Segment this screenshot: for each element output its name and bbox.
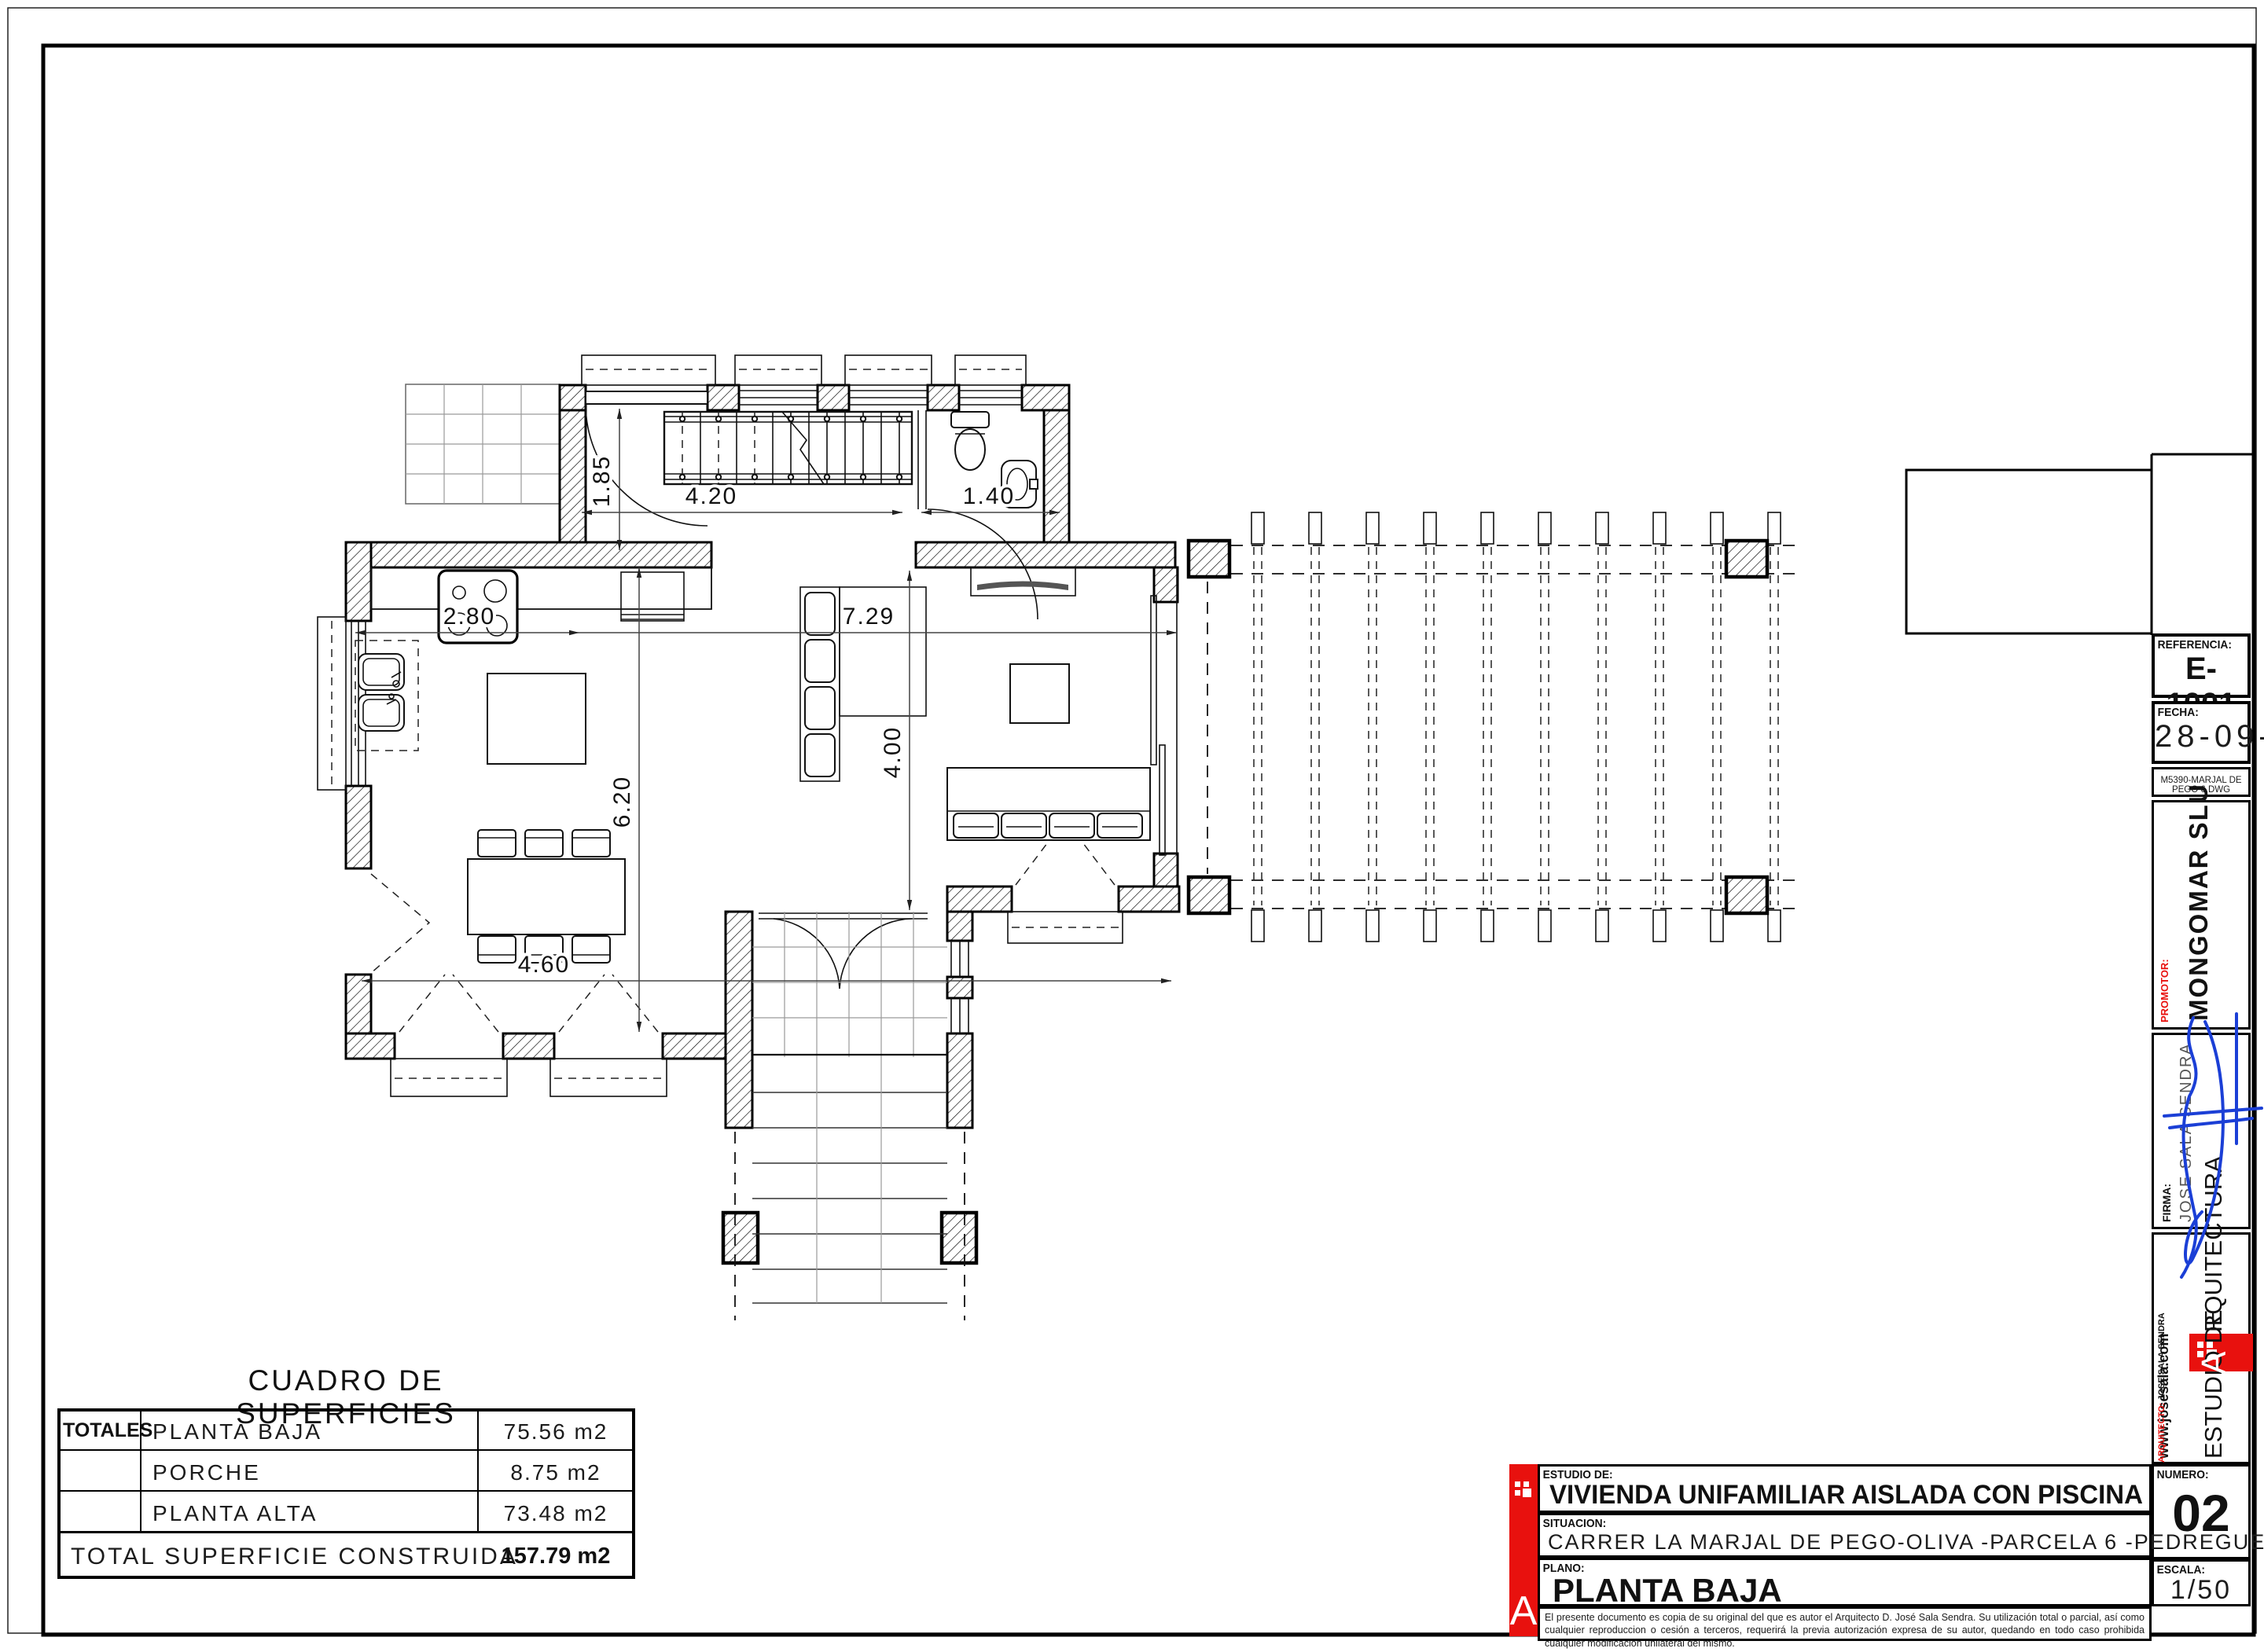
table-total-label: TOTAL SUPERFICIE CONSTRUIDA <box>71 1544 518 1570</box>
kitchen-counter <box>371 567 711 609</box>
red-bar-letter: A <box>1509 1588 1538 1635</box>
dim-185: 1.85 <box>589 455 615 507</box>
studio-text-bottom: ESTUDIO DE <box>2200 1361 2228 1459</box>
porch-pillar <box>942 1213 976 1263</box>
disclaimer-text: El presente documento es copia de su ori… <box>1540 1609 2149 1652</box>
dim-620: 6.20 <box>609 776 635 828</box>
promotor-box: PROMOTOR: MONGOMAR SLU <box>2152 800 2251 1030</box>
kitchen-fixtures <box>355 567 711 764</box>
table-row-label: PLANTA ALTA <box>153 1501 318 1526</box>
chair <box>478 936 516 963</box>
escala-value: 1/50 <box>2154 1575 2248 1606</box>
numero-label: NUMERO: <box>2154 1467 2240 1481</box>
toilet-bowl <box>955 429 985 470</box>
plano-value: PLANTA BAJA <box>1553 1572 2149 1610</box>
chair <box>478 830 516 857</box>
sliding-glass-door <box>1151 567 1177 855</box>
porch <box>735 912 965 1320</box>
drawing-sheet: { "plan": { "dims": { "d185": "1.85", "d… <box>0 0 2264 1642</box>
plano-label: PLANO: <box>1540 1560 2100 1575</box>
coffee-table <box>1010 664 1069 723</box>
pergola <box>1189 512 1796 942</box>
kitchen-appliance <box>621 572 684 621</box>
kitchen-island <box>487 674 586 764</box>
pergola-beams <box>1251 512 1781 942</box>
dim-460: 4.60 <box>518 952 570 978</box>
dim-729: 7.29 <box>843 604 895 630</box>
porch-double-door <box>759 913 928 989</box>
sink-bowl <box>358 695 404 731</box>
sink-bowl <box>358 654 404 690</box>
situacion-box: SITUACION: CARRER LA MARJAL DE PEGO-OLIV… <box>1538 1513 2152 1558</box>
promotor-value: MONGOMAR SLU <box>2184 802 2214 1021</box>
porch-pillar <box>723 1213 758 1263</box>
pergola-pillar <box>1189 877 1229 913</box>
pergola-pillar <box>1726 877 1767 913</box>
signature <box>2150 1006 2264 1289</box>
chair <box>572 936 610 963</box>
table-row-value: 73.48 m2 <box>481 1501 630 1526</box>
key-plan-box <box>1906 470 2152 633</box>
top-wall-windows <box>739 391 1022 405</box>
tv <box>977 582 1068 591</box>
table-row-value: 8.75 m2 <box>481 1460 630 1485</box>
dim-400: 4.00 <box>880 726 906 778</box>
situacion-label: SITUACION: <box>1540 1515 2100 1530</box>
pergola-pillar <box>1726 541 1767 577</box>
dining-table <box>468 859 625 934</box>
table-total-value: 157.79 m2 <box>481 1544 630 1569</box>
dim-280: 2.80 <box>443 604 495 630</box>
dim-420: 4.20 <box>685 483 737 509</box>
toilet-tank <box>951 412 989 428</box>
table-row-value: 75.56 m2 <box>481 1419 630 1445</box>
stairs <box>664 412 912 484</box>
project-title: VIVIENDA UNIFAMILIAR AISLADA CON PISCINA <box>1549 1480 2131 1511</box>
patio-tiles <box>406 384 560 504</box>
chair <box>572 830 610 857</box>
totales-label: TOTALES <box>63 1419 138 1442</box>
table-row-label: PORCHE <box>153 1460 261 1485</box>
disclaimer-box: El presente documento es copia de su ori… <box>1538 1606 2152 1641</box>
project-title-box: ESTUDIO DE: VIVIENDA UNIFAMILIAR AISLADA… <box>1538 1464 2152 1513</box>
arquitecto-label: ARQUITECTO: JOSE SALA SENDRA <box>2157 1337 2167 1463</box>
fecha-value: 28-09-23 <box>2155 719 2247 754</box>
studio-text-a: A <box>2195 1331 2234 1375</box>
referencia-box: REFERENCIA: E-1001 <box>2152 633 2251 698</box>
escala-box: ESCALA: 1/50 <box>2152 1559 2251 1606</box>
referencia-label: REFERENCIA: <box>2155 637 2240 652</box>
situacion-value: CARRER LA MARJAL DE PEGO-OLIVA -PARCELA … <box>1548 1530 2149 1555</box>
dim-140: 1.40 <box>963 483 1015 509</box>
plano-box: PLANO: PLANTA BAJA <box>1538 1558 2152 1606</box>
promotor-label: PROMOTOR: <box>2159 802 2170 1022</box>
fecha-box: FECHA: 28-09-23 <box>2152 701 2251 764</box>
table-row-label: PLANTA BAJA <box>153 1419 322 1445</box>
fecha-label: FECHA: <box>2155 704 2240 719</box>
escala-label: ESCALA: <box>2154 1562 2240 1577</box>
dining-furniture <box>468 830 625 963</box>
pergola-pillar <box>1189 541 1229 577</box>
chair <box>525 830 563 857</box>
red-bar: A <box>1509 1464 1538 1636</box>
